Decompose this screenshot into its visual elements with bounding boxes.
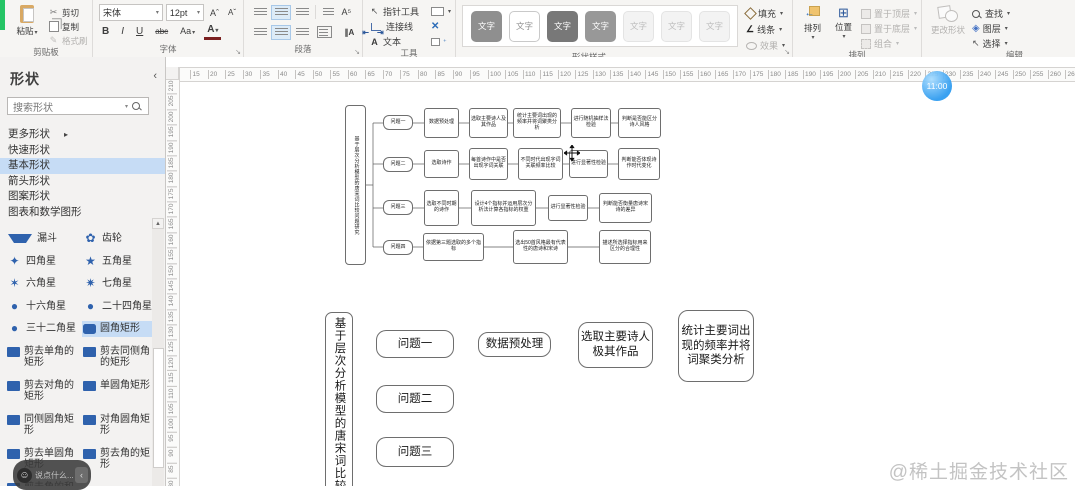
char-spacing-button[interactable]: A⁵ [338,4,355,20]
align-top-icon [254,28,267,37]
flowchart-node-label: 统计主要词出现的频率并将词聚类分析 [515,114,559,132]
shape-item[interactable]: 对角圆角矩形 [82,412,156,439]
fill-button[interactable]: 填充▾ [746,7,785,20]
ruler-tick: 45 [295,70,305,79]
chevron-down-icon: ▾ [35,30,38,36]
ruler-tick: 135 [167,309,177,322]
flowchart-node[interactable]: 选取诗作 [424,150,459,178]
shape-item[interactable]: ✶六角星 [6,276,82,292]
underline-button[interactable]: U [133,25,146,39]
flowchart-node-label: 选取主要诗人及其作品 [471,117,506,129]
ribbon-group-tools: ↖指针工具 连接线 A文本 ▾ ✕ ⁺ 工具 [363,0,456,57]
circle-icon: ● [83,301,98,312]
align-top-button[interactable] [250,25,270,40]
app-window: 粘贴▾ ✂剪切 复制 ✎格式刷 剪贴板 宋体▾ 12pt▾ Aˆ Aˇ [0,0,1075,486]
shape-item-label: 七角星 [102,278,132,290]
ruler-tick: 120 [558,70,571,79]
ruler-tick: 150 [663,70,676,79]
ruler-tick: 65 [365,70,375,79]
flowchart-node[interactable]: 选取主要诗人极其作品 [578,322,653,368]
ruler-tick: 95 [167,432,177,442]
circle-icon: ● [7,301,22,312]
connector-tool-button[interactable]: 连接线 [369,20,427,33]
rectangle-icon [431,7,444,16]
ribbon-group-paragraph: A⁵ ∥A ⇤ ⇥ 段落 ↘ [244,0,363,57]
ruler-tick: 110 [523,70,536,79]
group-button[interactable]: 组合▾ [861,37,917,50]
flowchart-node[interactable]: 判断能否体现诗作时代变化 [618,148,660,180]
flowchart-node-label: 问题一 [390,120,405,126]
ruler-tick: 105 [505,70,518,79]
shape-item[interactable]: ✷七角星 [82,276,156,292]
ruler-tick: 125 [167,339,177,352]
shape-item-label: 单圆角矩形 [100,380,150,392]
flowchart-node[interactable]: 进行显著性检验 [548,195,588,221]
ruler-tick: 30 [243,70,253,79]
bring-to-front-button[interactable]: 置于顶层▾ [861,7,917,20]
font-size-select[interactable]: 12pt▾ [166,4,204,21]
connection-point-icon [431,38,440,46]
flowchart-node-label: 基于层次分析模型的唐宋词比较问题研究 [353,136,359,235]
flowchart-node[interactable]: 问题二 [383,157,413,172]
x-tool-button[interactable]: ✕ [431,20,451,33]
flowchart-node[interactable]: 设计4个指标并运用层次分析法计算各指标的权重 [471,190,536,226]
ruler-tick: 90 [167,447,177,457]
shape-item-label: 齿轮 [102,233,122,245]
change-shape-icon [938,6,958,22]
justify-icon [317,26,332,38]
ruler-tick: 75 [400,70,410,79]
ruler-tick: 145 [645,70,658,79]
star5-icon: ★ [83,256,98,267]
ruler-tick: 220 [908,70,921,79]
flowchart-node-label: 设计4个指标并运用层次分析法计算各指标的权重 [473,202,534,214]
chevron-down-icon[interactable]: ▾ [125,103,128,110]
flowchart-node-label: 基于层次分析模型的唐宋词比较 [332,317,347,486]
flowchart-node-label: 问题一 [398,337,433,352]
flowchart-node[interactable]: 判断能否衡量唐诗宋诗的差异 [599,193,652,223]
ribbon: 粘贴▾ ✂剪切 复制 ✎格式刷 剪贴板 宋体▾ 12pt▾ Aˆ Aˇ [0,0,1075,58]
panel-collapse-icon[interactable]: ‹ [153,70,157,82]
shape-item-label: 五角星 [102,256,132,268]
ribbon-group-font: 宋体▾ 12pt▾ Aˆ Aˇ B I U abc Aa▾ A▾ 字体 [93,0,244,57]
format-painter-icon: ✎ [48,35,59,46]
ruler-tick: 150 [167,263,177,276]
position-icon: ⊞ [838,6,849,19]
copy-icon [49,21,59,32]
ruler-tick: 135 [610,70,623,79]
flowchart-node-label: 进行随机抽样法检验 [573,117,609,129]
char-spacing-icon: A⁵ [342,7,352,17]
flowchart-node-label: 问题三 [390,205,405,211]
ruler-tick: 235 [960,70,973,79]
paragraph-dialog-launcher[interactable]: ↘ [354,48,360,56]
shape-item-label: 同侧圆角矩形 [24,414,81,437]
change-case-button[interactable]: Aa▾ [177,24,198,40]
position-button[interactable]: ⊞ 位置▾ [830,4,857,40]
change-shape-button[interactable]: 更改形状 [928,4,968,36]
ruler-tick: 140 [167,293,177,306]
ruler-tick: 90 [453,70,463,79]
flowchart-node[interactable]: 问题一 [376,330,454,358]
ruler-tick: 70 [383,70,393,79]
accent-bar [0,0,5,30]
group-icon [861,39,871,49]
flowchart-node-label: 判断能否体现诗作时代变化 [620,158,658,170]
shape-style-swatch[interactable]: 文字 [699,11,730,42]
layers-icon: ◈ [972,23,980,34]
sidebar-item-5[interactable]: 图表和数学图形 [0,205,165,221]
ruler-tick: 245 [995,70,1008,79]
shapes-panel: 形状 ‹ 搜索形状 ▾ 更多形状▸快速形状基本形状箭头形状图案形状图表和数学图形… [0,57,166,486]
ruler-tick: 105 [167,401,177,414]
font-dialog-launcher[interactable]: ↘ [235,48,241,56]
shape-item-label: 三十二角星 [26,323,76,335]
font-color-button[interactable]: A▾ [204,24,221,40]
rect-icon [7,347,20,357]
shape-item[interactable]: ★五角星 [82,254,156,270]
shape-item[interactable]: 剪去对角的矩形 [6,378,82,405]
align-center-icon [275,8,288,17]
align-right-icon [296,8,309,17]
circle-icon: ● [7,323,22,334]
ruler-tick: 115 [540,70,553,79]
shapes-panel-title: 形状 [10,69,40,89]
flowchart-node[interactable]: 判断是否能区分诗人风格 [618,108,661,138]
ribbon-group-clipboard: 粘贴▾ ✂剪切 复制 ✎格式刷 剪贴板 [0,0,93,57]
star6-icon: ✶ [7,278,22,289]
sidebar-item-2[interactable]: 基本形状 [0,158,165,174]
shape-item[interactable]: ●二十四角星 [82,299,156,315]
shape-item[interactable]: 圆角矩形 [82,321,156,337]
stencil-nav-list: 更多形状▸快速形状基本形状箭头形状图案形状图表和数学图形 [0,127,165,220]
shape-style-swatch[interactable]: 文字 [661,11,692,42]
text-direction-icon: ∥A [345,28,355,37]
ruler-tick: 170 [733,70,746,79]
rect-icon [83,449,96,459]
ruler-tick: 15 [190,70,200,79]
flowchart-node-label: 选出50首风格最有代表性的唐诗和宋诗 [515,241,566,253]
flowchart-node[interactable]: 不同时代出现字词关联频率比较 [518,148,563,180]
ruler-tick: 175 [167,186,177,199]
flowchart-node[interactable]: 每首诗作中是否出现字词关联 [469,148,508,180]
submenu-arrow-icon: ▸ [64,130,68,139]
clipboard-group-label: 剪贴板 [0,47,92,57]
flowchart-node-label: 选取不同时期的诗作 [426,202,457,214]
ruler-tick: 40 [278,70,288,79]
rect-icon [83,381,96,391]
ruler-tick: 95 [470,70,480,79]
connection-point-button[interactable]: ⁺ [431,35,451,48]
rect-icon [7,449,20,459]
scroll-up-icon[interactable]: ▲ [152,218,164,229]
ruler-tick: 145 [167,278,177,291]
ruler-tick: 85 [167,463,177,473]
ruler-tick: 185 [167,155,177,168]
cut-button[interactable]: ✂剪切 [48,6,88,19]
ruler-tick: 175 [750,70,763,79]
flowchart-node[interactable]: 统计主要词出现的频率并将词聚类分析 [678,310,754,382]
scrollbar-thumb[interactable] [153,348,164,468]
ruler-tick: 130 [593,70,606,79]
gear-icon: ✿ [83,233,98,244]
flowchart-node-label: 问题四 [390,245,405,251]
effects-button[interactable]: 效果▾ [746,39,785,52]
shape-item-label: 二十四角星 [102,301,152,313]
align-left-button[interactable] [250,5,270,20]
ruler-tick: 195 [820,70,833,79]
flowchart-node-label: 统计主要词出现的频率并将词聚类分析 [681,324,751,369]
flowchart-node[interactable]: 选取主要诗人及其作品 [469,108,508,138]
font-name-select[interactable]: 宋体▾ [99,4,163,21]
rect-icon [83,347,96,357]
shape-item-label: 剪去对角的矩形 [24,380,81,403]
ribbon-group-shape-styles: 文字文字文字文字文字文字文字 填充▾ ∠线条▾ 效果▾ 形状样式 ↘ [456,0,793,57]
align-shapes-icon: ← [804,6,820,20]
flowchart-node[interactable]: 选出50首风格最有代表性的唐诗和宋诗 [513,230,568,264]
shrink-font-button[interactable]: Aˇ [225,6,239,20]
shape-item-label: 六角星 [26,278,56,290]
sidebar-item-1[interactable]: 快速形状 [0,143,165,159]
flowchart-node[interactable]: 数据预处理 [424,108,459,138]
ruler-tick: 180 [167,170,177,183]
ruler-tick: 20 [208,70,218,79]
ruler-tick: 185 [785,70,798,79]
shape-item[interactable]: 剪去同侧角的矩形 [82,344,156,371]
paste-button[interactable]: 粘贴▾ [10,4,44,37]
send-back-icon [861,24,871,34]
ribbon-group-arrange: ← 排列▾ ⊞ 位置▾ 置于顶层▾ 置于底层▾ 组合▾ 排列 [793,0,922,57]
select-button[interactable]: ↖选择▾ [972,37,1010,50]
ruler-tick: 35 [260,70,270,79]
shape-item-label: 四角星 [26,256,56,268]
line-button[interactable]: ∠线条▾ [746,23,785,36]
flowchart-node[interactable]: 选取不同时期的诗作 [424,190,459,226]
ruler-tick: 155 [167,247,177,260]
shape-style-swatch[interactable]: 文字 [471,11,502,42]
shape-item[interactable]: ✦四角星 [6,254,82,270]
shape-item-label: 漏斗 [37,233,57,245]
flowchart-node-label: 问题二 [398,392,433,407]
rounded-rect-icon [83,324,96,334]
flowchart-node-label: 进行显著性检验 [550,205,585,211]
flowchart-node-label: 依据第三题选取的多个指标 [425,241,482,253]
align-bottom-icon [296,28,309,37]
fill-icon [744,7,757,20]
ruler-tick: 210 [167,78,177,91]
flowchart-node[interactable]: 基于层次分析模型的唐宋词比较问题研究 [345,105,366,265]
bring-front-icon [861,9,871,19]
ruler-tick: 155 [680,70,693,79]
x-icon: ✕ [431,21,439,32]
shape-item-label: 十六角星 [26,301,66,313]
sidebar-item-4[interactable]: 图案形状 [0,189,165,205]
shape-style-gallery: 文字文字文字文字文字文字文字 [462,5,738,47]
justify-button[interactable] [313,23,335,41]
shape-item[interactable]: 剪去角的矩形 [82,446,156,473]
shape-item[interactable]: ●三十二角星 [6,321,82,337]
shape-style-swatch[interactable]: 文字 [509,11,540,42]
shape-styles-dialog-launcher[interactable]: ↘ [784,48,790,56]
flowchart-node-label: 判断是否能区分诗人风格 [620,117,659,129]
copy-button[interactable]: 复制 [48,20,88,33]
pointer-tool-button[interactable]: ↖指针工具 [369,5,427,18]
ruler-tick: 210 [873,70,886,79]
watermark: @稀土掘金技术社区 [889,457,1069,484]
select-cursor-icon: ↖ [972,38,980,49]
align-shapes-button[interactable]: ← 排列▾ [799,4,826,41]
ruler-tick: 190 [803,70,816,79]
ruler-tick: 250 [1013,70,1026,79]
rect-icon [83,415,96,425]
vertical-ruler: 2102052001951901851801751701651601551501… [166,67,180,486]
shape-style-swatch[interactable]: 文字 [623,11,654,42]
connector-icon [371,23,381,31]
shape-item-label: 剪去单角的矩形 [24,346,81,369]
ruler-tick: 85 [435,70,445,79]
ruler-tick: 125 [575,70,588,79]
align-middle-button[interactable] [271,25,291,40]
flowchart-node-label: 数据预处理 [429,120,454,126]
italic-button[interactable]: I [118,25,127,39]
ruler-tick: 180 [768,70,781,79]
flowchart-node[interactable]: 问题一 [383,115,413,130]
shape-item-label: 对角圆角矩形 [100,414,155,437]
chat-placeholder[interactable]: 说点什么... [35,470,75,481]
send-to-back-button[interactable]: 置于底层▾ [861,22,917,35]
shape-item[interactable]: 剪去单角的矩形 [6,344,82,371]
pointer-icon: ↖ [369,6,380,17]
ruler-tick: 170 [167,201,177,214]
clock-bubble[interactable]: 11:00 [922,71,952,101]
ruler-tick: 55 [330,70,340,79]
shape-item[interactable]: 同侧圆角矩形 [6,412,82,439]
effects-icon [746,42,757,50]
drawing-canvas[interactable]: 1520253035404550556065707580859095100105… [166,57,1075,486]
flowchart-node-label: 问题三 [398,445,433,460]
ruler-tick: 80 [167,478,177,486]
flowchart-node[interactable]: 问题二 [376,385,454,413]
clipboard-icon [20,5,34,23]
shape-style-swatch[interactable]: 文字 [585,11,616,42]
star7-icon: ✷ [83,278,98,289]
ruler-tick: 205 [855,70,868,79]
flowchart-node[interactable]: 数据预处理 [478,332,551,357]
ribbon-group-editing: 更改形状 查找▾ ◈图层▾ ↖选择▾ 编辑 [922,0,1067,57]
flowchart-node-label: 每首诗作中是否出现字词关联 [471,158,506,170]
sidebar-item-3[interactable]: 箭头形状 [0,174,165,190]
bullet-list-button[interactable] [319,5,337,20]
ruler-tick: 50 [313,70,323,79]
paragraph-group-label: 段落 [244,44,362,57]
ruler-tick: 80 [418,70,428,79]
flowchart-node[interactable]: 问题三 [376,437,454,467]
font-group-label: 字体 [93,44,243,57]
emoji-icon[interactable]: ☺ [17,468,32,483]
shape-item[interactable]: ✿齿轮 [82,231,156,247]
ruler-tick: 115 [167,370,177,383]
ruler-tick: 205 [167,93,177,106]
search-icon[interactable] [132,102,140,110]
ruler-tick: 200 [838,70,851,79]
sidebar-item-0[interactable]: 更多形状▸ [0,127,165,143]
ruler-tick: 200 [167,109,177,122]
star4-icon: ✦ [7,256,22,267]
flowchart-node[interactable]: 问题三 [383,200,413,215]
ruler-tick: 165 [167,216,177,229]
align-right-button[interactable] [292,5,312,20]
align-center-button[interactable] [271,5,291,20]
ruler-tick: 160 [167,232,177,245]
shape-style-swatch[interactable]: 文字 [547,11,578,42]
shape-item-label: 剪去同侧角的矩形 [100,346,155,369]
align-left-icon [254,8,267,17]
rectangle-tool-button[interactable]: ▾ [431,5,451,18]
move-cursor-icon [564,145,580,161]
text-direction-button[interactable]: ∥A [341,25,358,40]
ruler-tick: 240 [978,70,991,79]
ruler-tick: 110 [167,386,177,399]
flowchart-node-label: 判断能否衡量唐诗宋诗的差异 [601,202,650,214]
rect-icon [7,415,20,425]
flowchart-node-label: 进行显著性检验 [571,161,606,167]
flowchart-node[interactable]: 统计主要词出现的频率并将词聚类分析 [513,108,561,138]
flowchart-node-label: 选取诗作 [431,161,451,167]
ruler-tick: 190 [167,140,177,153]
flowchart-node[interactable]: 基于层次分析模型的唐宋词比较 [325,312,353,486]
search-icon [972,10,980,18]
shape-item[interactable]: 漏斗 [6,231,82,247]
ruler-tick: 120 [167,355,177,368]
shape-item-label: 圆角矩形 [100,323,140,335]
rect-icon [7,381,20,391]
ruler-tick: 265 [1065,70,1075,79]
flowchart-node[interactable]: 进行随机抽样法检验 [571,108,611,138]
layers-button[interactable]: ◈图层▾ [972,22,1010,35]
ruler-tick: 165 [715,70,728,79]
ruler-tick: 25 [225,70,235,79]
flowchart-node-label: 选取主要诗人极其作品 [581,330,650,360]
text-tool-button[interactable]: A文本 [369,35,427,48]
ruler-tick: 215 [890,70,903,79]
shape-search-input[interactable]: 搜索形状 ▾ [7,97,149,115]
ruler-tick: 260 [1048,70,1061,79]
flowchart-node[interactable]: 问题四 [383,240,413,255]
strikethrough-button[interactable]: abc [152,25,171,39]
line-icon: ∠ [746,24,754,35]
ruler-tick: 130 [167,324,177,337]
ruler-tick: 100 [167,416,177,429]
ruler-tick: 255 [1030,70,1043,79]
grow-font-button[interactable]: Aˆ [207,6,222,20]
shape-item[interactable]: ●十六角星 [6,299,82,315]
gallery-scrollbar[interactable]: ▲ [152,218,164,486]
ruler-tick: 140 [628,70,641,79]
shape-item-label: 剪去角的矩形 [100,448,155,471]
ruler-tick: 195 [167,124,177,137]
scissors-icon: ✂ [48,7,59,18]
find-button[interactable]: 查找▾ [972,7,1010,20]
ruler-tick: 100 [488,70,501,79]
format-painter-button[interactable]: ✎格式刷 [48,34,88,47]
align-middle-icon [275,28,288,37]
bold-button[interactable]: B [99,25,112,39]
shape-item[interactable]: 单圆角矩形 [82,378,156,405]
chat-collapse-icon[interactable]: ‹ [75,467,88,483]
flowchart-node[interactable]: 依据第三题选取的多个指标 [423,233,484,261]
flowchart-node[interactable]: 描述所选择指标用来区分的合理性 [599,230,651,264]
align-bottom-button[interactable] [292,25,312,40]
